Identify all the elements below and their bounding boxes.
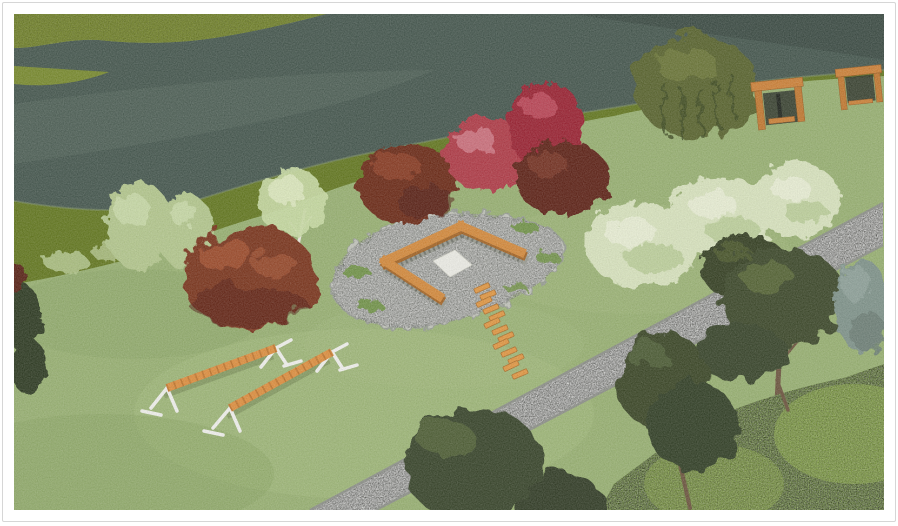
landscape-render [14, 14, 884, 510]
texture-overlay [14, 14, 884, 510]
screenshot-page [0, 0, 898, 526]
